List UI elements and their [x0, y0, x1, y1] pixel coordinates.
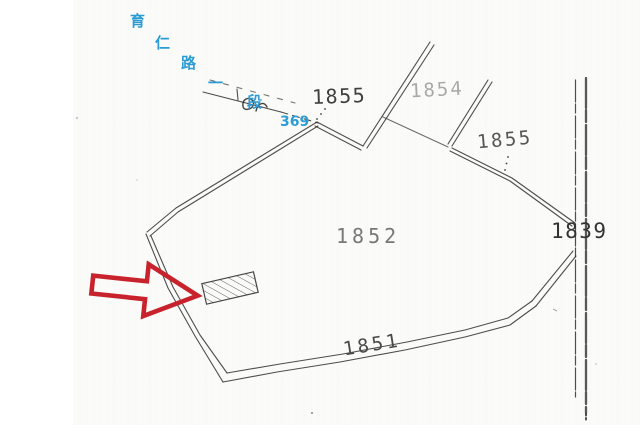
leader-dots [76, 108, 597, 414]
road-name-char-yu: 育 [130, 14, 145, 29]
road-name-char-yi: 一 [208, 76, 223, 91]
parcel-label-1855-top: 1855 [312, 85, 367, 107]
red-arrow-icon [90, 259, 201, 322]
parcel-label-1839: 1839 [551, 221, 608, 242]
parcel-label-1855-right: 1855 [476, 129, 533, 153]
road-name-char-lu: 路 [181, 56, 196, 71]
road-name-char-ren: 仁 [155, 36, 170, 51]
road-number: 369 [280, 115, 309, 129]
road-name-char-duan: 段 [247, 95, 262, 110]
hatched-area [202, 272, 258, 304]
parcel-boundary-drawing [0, 0, 640, 425]
parcel-label-1852: 1852 [336, 226, 400, 246]
parcel-label-1854: 1854 [410, 80, 465, 102]
cadastral-map: 育 仁 路 一 段 369 1855 1854 1855 1852 1839 1… [0, 0, 640, 425]
